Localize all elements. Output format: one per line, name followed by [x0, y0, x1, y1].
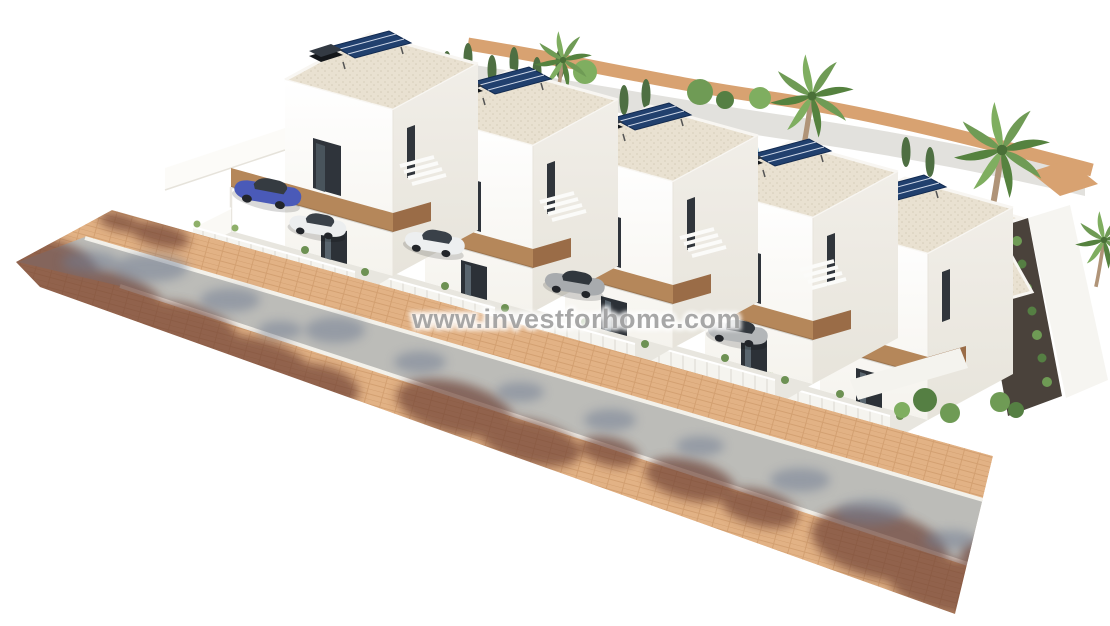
watermark-text: www.investforhome.com — [411, 304, 741, 334]
render-canvas: www.investforhome.com www.investforhome.… — [0, 0, 1110, 626]
watermark: www.investforhome.com www.investforhome.… — [411, 304, 741, 334]
villa-development-render: www.investforhome.com www.investforhome.… — [0, 0, 1110, 626]
